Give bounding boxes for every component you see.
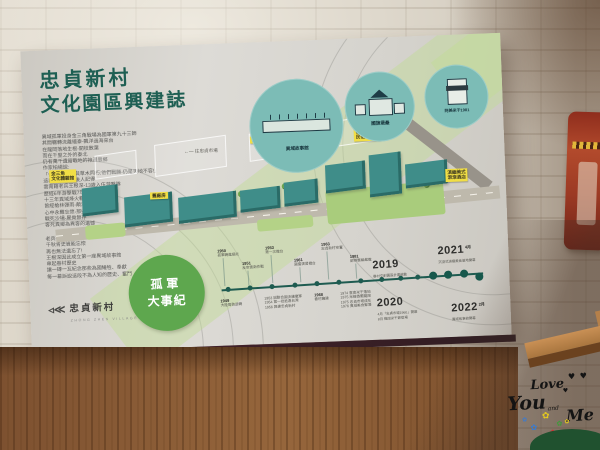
decal-word-love: Love: [530, 376, 564, 393]
map-tag-golden-triangle: 金三角 文化體驗館: [49, 169, 76, 183]
timeline-dot: [358, 278, 363, 283]
logo-name: 忠貞新村: [69, 302, 115, 315]
timeline-dot-large: [475, 272, 483, 280]
poster-face: 忠貞新村 文化園區興建誌 異域孤軍投身金三角戰場為國軍第九十三師 其間輾轉流離緬…: [20, 33, 511, 353]
tag-line: 滾滾酒店: [447, 175, 466, 181]
poster-title-line2: 文化園區興建誌: [40, 85, 188, 118]
timeline-dot: [269, 284, 274, 289]
map-tag-hotel: 滇緬美式 滾滾酒店: [445, 168, 468, 182]
timeline-dot-large: [429, 271, 437, 279]
decal-word-you: You: [507, 391, 547, 415]
timeline-year-2020: 2020 4月「忠貞市場1960」開幕 8月 龍岡米干節登場: [376, 291, 418, 322]
timeline-event: 1950 孤軍轉進緬北: [217, 247, 253, 258]
gate-roof-sketch: [370, 89, 388, 98]
map-building: [325, 160, 366, 193]
timeline-event: 1949 大陸局勢逆轉: [220, 297, 262, 309]
timeline-dot: [247, 285, 252, 290]
zhongzhen-logo-icon: ◃≪: [48, 304, 65, 317]
circle-label: 國旗堡壘: [345, 119, 415, 128]
map-building: [82, 184, 119, 217]
timeline-year-2021: 20214月 沉浸式滇緬美食基地開幕: [437, 239, 476, 264]
long-building-sketch: [262, 119, 330, 134]
timeline-dot: [225, 287, 230, 292]
heart-icon: ♥: [563, 387, 569, 394]
flower-icon: ✿: [564, 417, 569, 426]
timeline-event: 1951 反攻雲南作戰: [242, 260, 278, 271]
timeline-dot: [415, 274, 420, 279]
red-vertical-sign: [564, 111, 600, 250]
timeline-year-2022: 20222月 異域故事館開幕: [451, 296, 486, 321]
badge-line2: 大事紀: [129, 290, 206, 310]
timeline-dot: [292, 282, 297, 287]
flower-icon: ✿: [530, 423, 537, 432]
decal-word-me: Me: [566, 405, 595, 425]
storefront-sketch: [447, 78, 468, 105]
timeline-event: 1961 國雷演習撤台: [294, 256, 330, 267]
flower-icon: ✿: [556, 420, 562, 429]
gate-building-sketch: [368, 98, 393, 116]
poster-board: 忠貞新村 文化園區興建誌 異域孤軍投身金三角戰場為國軍第九十三師 其間輾轉流離緬…: [20, 33, 511, 353]
timeline-year-2019: 2019 眷村文創園區計畫啟動: [372, 253, 407, 278]
zhongzhen-village-logo: ◃≪忠貞新村 ZHONG ZHEN VILLAGE: [48, 297, 138, 323]
timeline-dot-large: [460, 269, 468, 277]
timeline-dot-large: [444, 270, 452, 278]
timeline-dot: [336, 280, 341, 285]
flower-icon: ✿: [522, 415, 527, 424]
gate-wing-sketch: [354, 104, 365, 115]
map-direction-arrow-label: ←— 往忠貞市場: [184, 148, 218, 155]
flower-icon: ✿: [542, 412, 550, 421]
circle-label: 阿美米干1981: [425, 106, 489, 114]
photo-scene: 忠貞新村 文化園區興建誌 異域孤軍投身金三角戰場為國軍第九十三師 其間輾轉流離緬…: [0, 0, 600, 450]
timeline-dot: [314, 281, 319, 286]
map-building: [284, 179, 319, 207]
timeline-event: 1953 第一次撤台: [265, 244, 301, 255]
tag-line: 文化體驗館: [51, 176, 74, 182]
circle-label: 異域故事館: [250, 144, 344, 154]
history-timeline: 1950 孤軍轉進緬北 1951 反攻雲南作戰 1953 第一次撤台 1961 …: [215, 224, 501, 346]
timeline-event: 1953 因聯合國決議撤軍 1954 第一批抵達台灣 1956 興建忠貞新村: [264, 294, 307, 310]
hearts-icon: ♥ ♥: [568, 371, 588, 381]
map-tag-old-factory: 舊廠房: [150, 192, 168, 200]
wood-lower-wall: [0, 347, 518, 450]
map-building: [369, 151, 402, 197]
timeline-event: 1963 忠貞新村安置: [321, 241, 357, 252]
gate-wing-sketch: [394, 103, 405, 114]
